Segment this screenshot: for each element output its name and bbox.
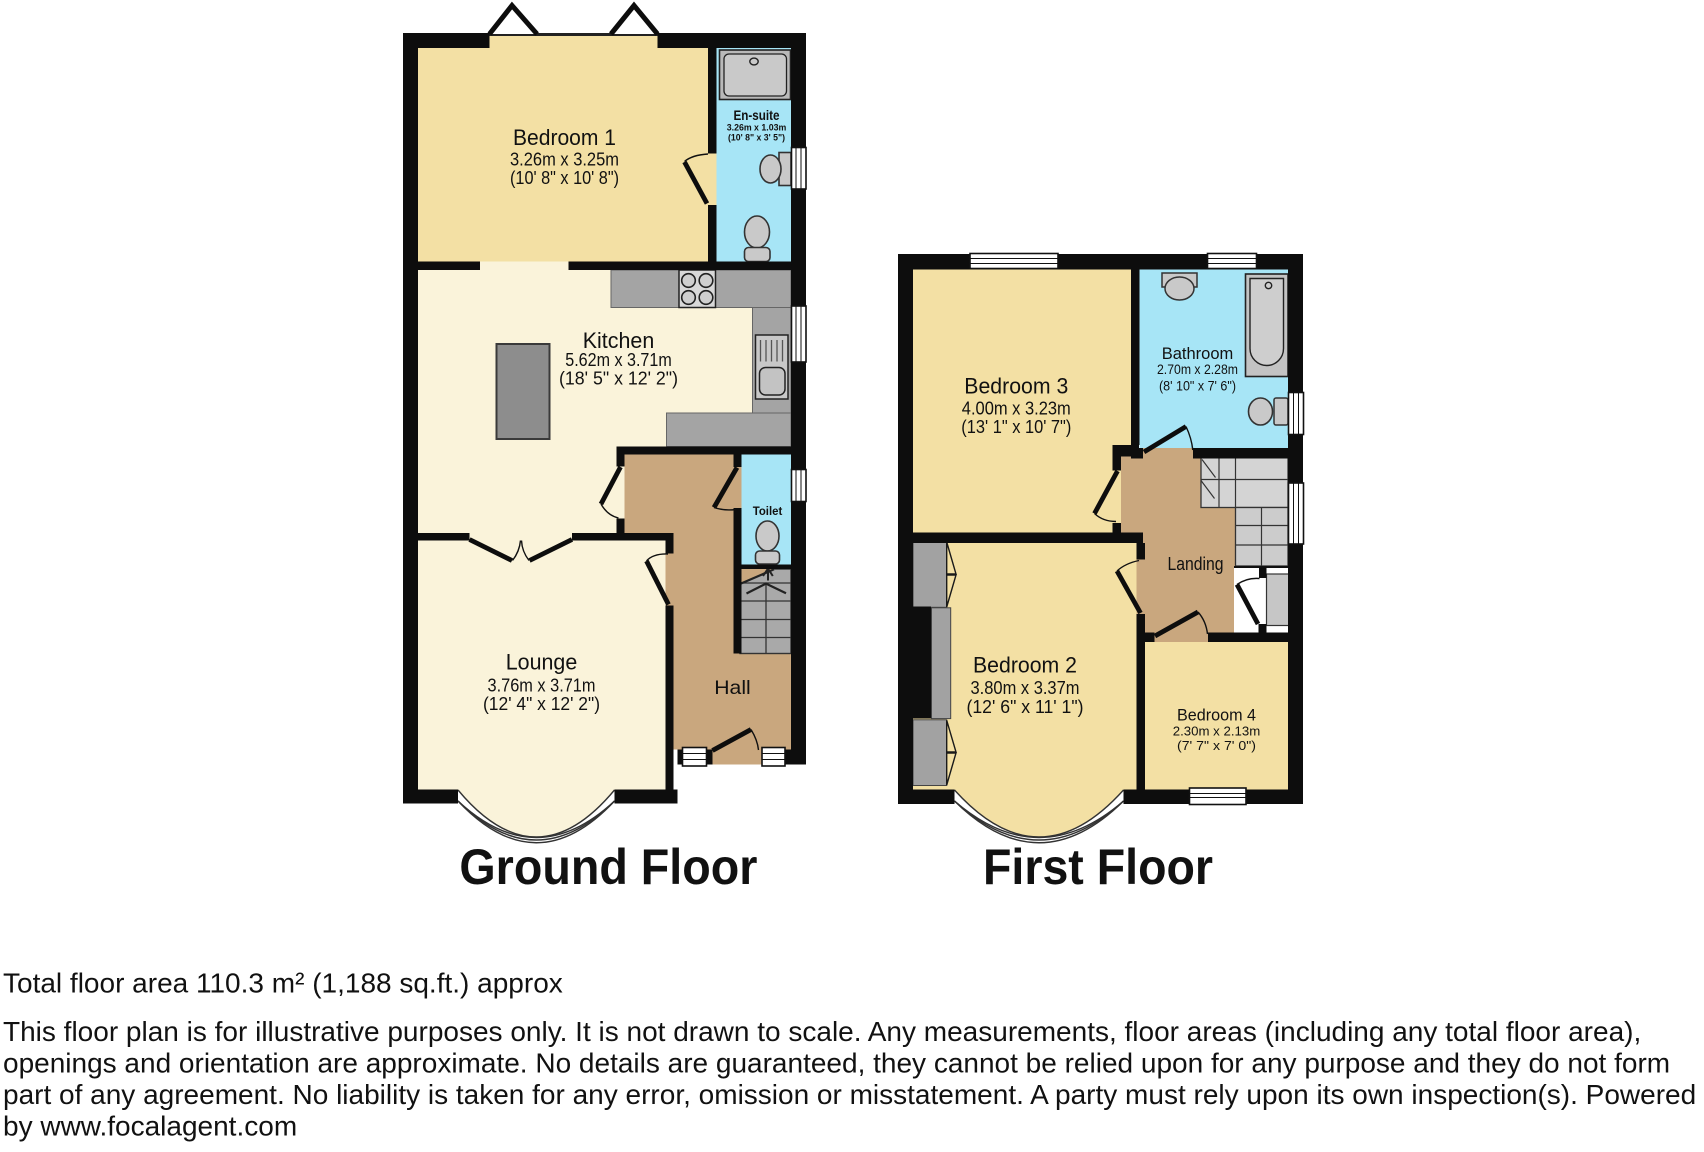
svg-text:Toilet: Toilet [753,504,783,518]
svg-text:Bedroom 1: Bedroom 1 [513,125,616,150]
svg-text:2.70m x 2.28m: 2.70m x 2.28m [1157,362,1238,377]
svg-text:(10' 8" x 10' 8"): (10' 8" x 10' 8") [510,167,619,188]
svg-text:by www.focalagent.com: by www.focalagent.com [3,1111,297,1142]
svg-text:This floor plan is for illustr: This floor plan is for illustrative purp… [3,1016,1641,1047]
svg-text:Hall: Hall [714,677,751,699]
svg-text:2.30m x 2.13m: 2.30m x 2.13m [1173,724,1261,739]
svg-text:Bathroom: Bathroom [1162,344,1234,363]
svg-text:(10' 8" x 3' 5"): (10' 8" x 3' 5") [728,133,785,144]
svg-text:(7' 7" x 7' 0"): (7' 7" x 7' 0") [1177,738,1256,753]
svg-text:(12' 6" x 11' 1"): (12' 6" x 11' 1") [967,696,1084,717]
svg-text:(12' 4" x 12' 2"): (12' 4" x 12' 2") [483,693,600,714]
svg-text:openings and orientation are a: openings and orientation are approximate… [3,1048,1670,1079]
svg-text:Total floor area 110.3 m² (1,1: Total floor area 110.3 m² (1,188 sq.ft.)… [3,968,563,999]
svg-text:Bedroom 2: Bedroom 2 [973,653,1077,678]
svg-text:Ground Floor: Ground Floor [459,839,757,895]
svg-text:part of any agreement. No liab: part of any agreement. No liability is t… [3,1079,1696,1110]
svg-text:Landing: Landing [1168,553,1224,574]
svg-text:(8' 10" x 7' 6"): (8' 10" x 7' 6") [1159,379,1236,394]
svg-text:3.80m x 3.37m: 3.80m x 3.37m [971,677,1080,698]
svg-text:Bedroom 3: Bedroom 3 [964,374,1068,399]
svg-text:En-suite: En-suite [734,108,780,123]
svg-text:(13' 1" x 10' 7"): (13' 1" x 10' 7") [961,416,1071,437]
svg-text:Bedroom 4: Bedroom 4 [1177,706,1256,725]
svg-text:Lounge: Lounge [506,650,578,675]
svg-text:(18' 5" x 12' 2"): (18' 5" x 12' 2") [559,368,678,389]
svg-text:First Floor: First Floor [983,839,1213,895]
